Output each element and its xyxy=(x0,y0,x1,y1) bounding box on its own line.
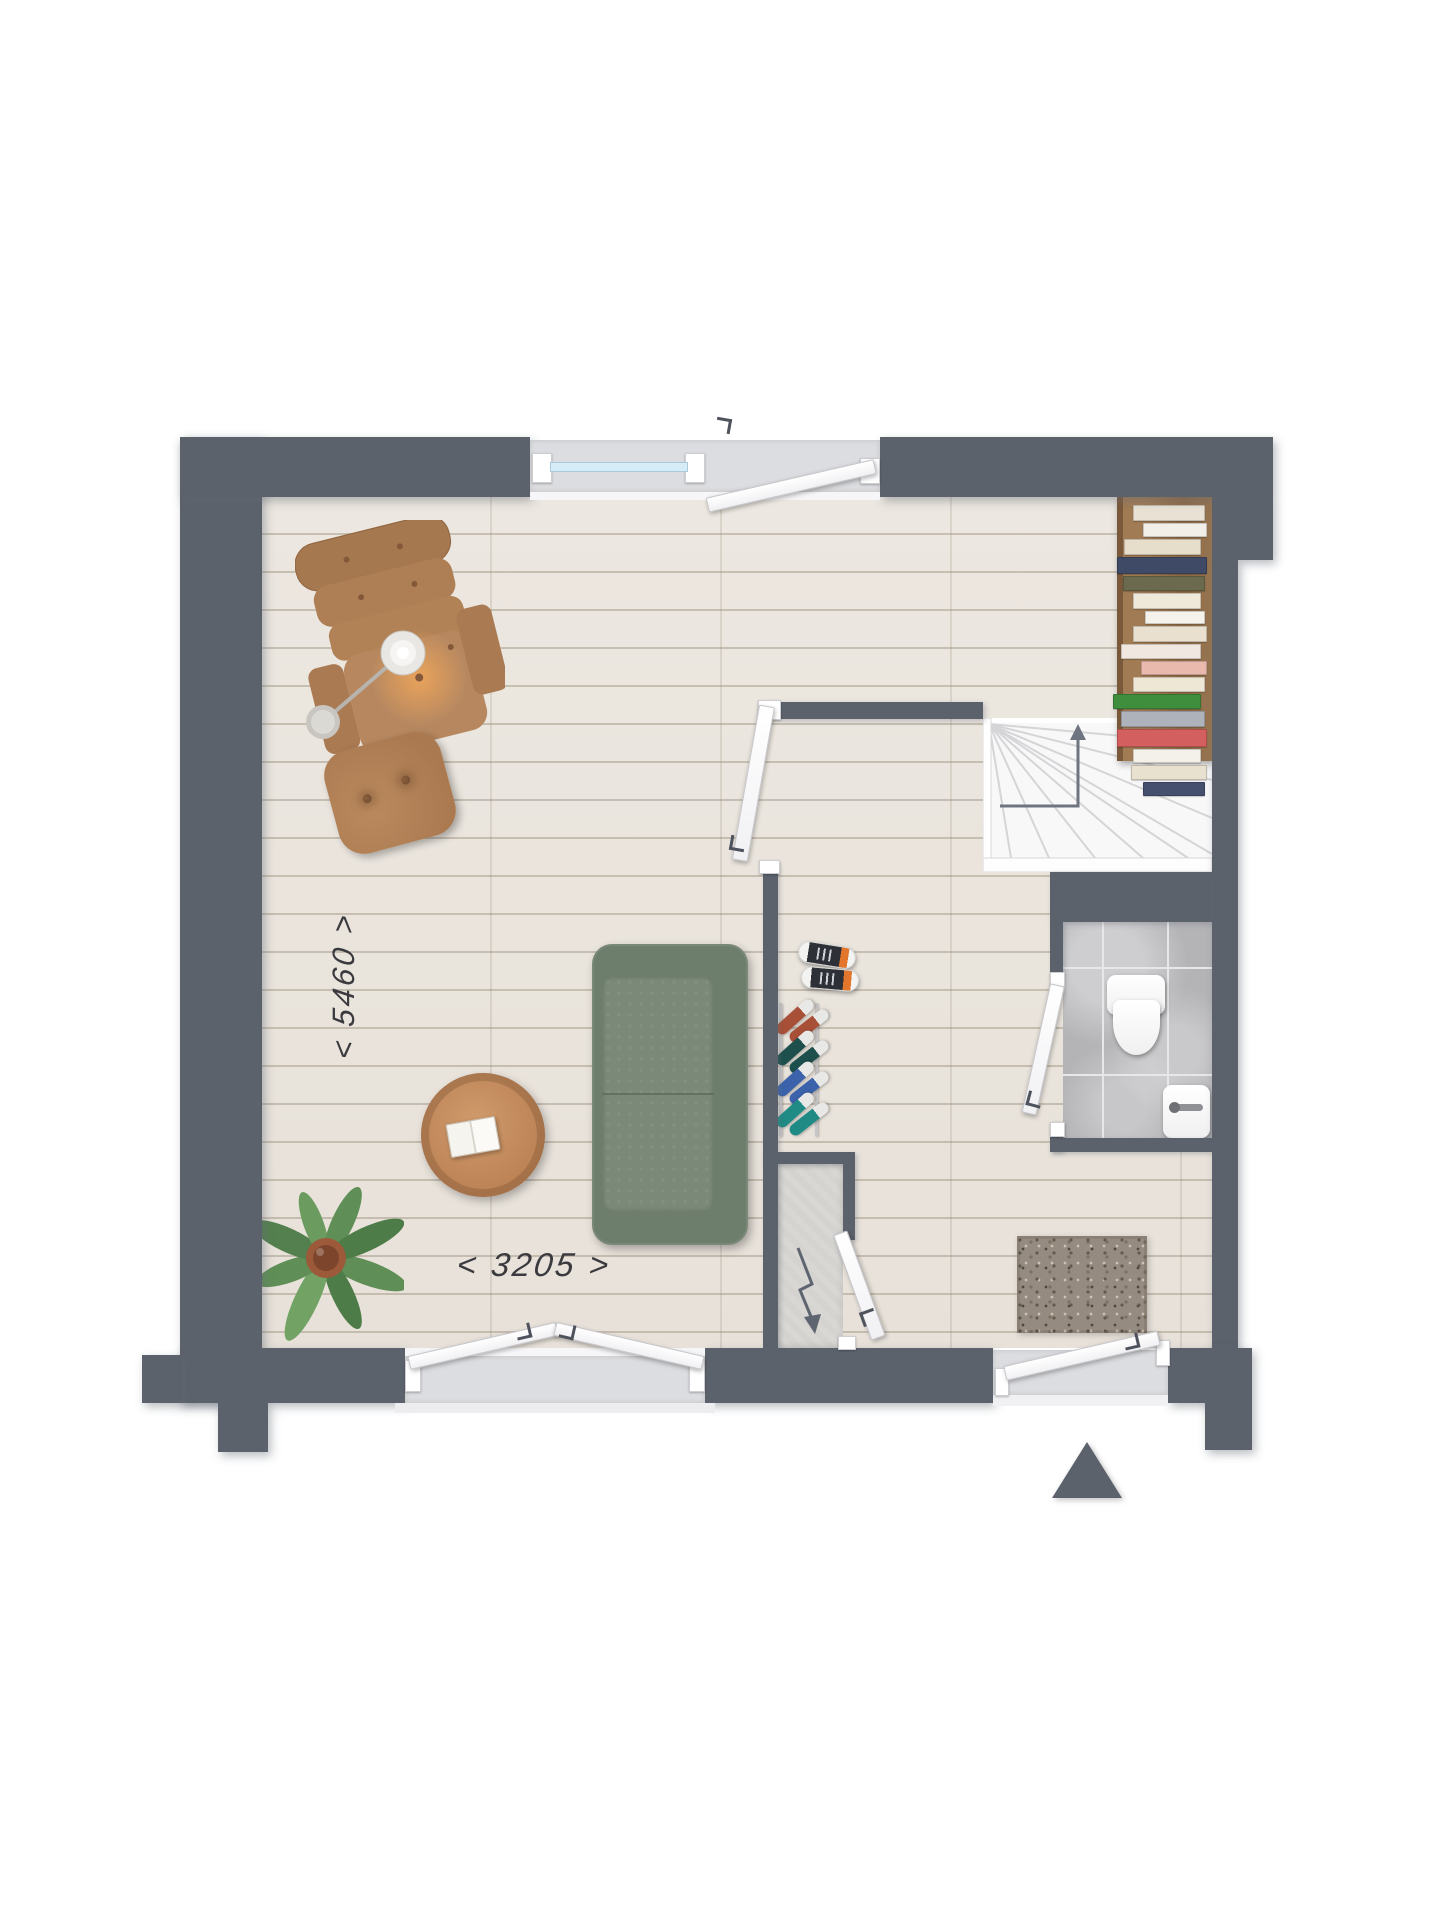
ottoman-button xyxy=(400,774,411,785)
wall-bottom-right-corner-block xyxy=(1205,1348,1252,1450)
wall-right-top-pillar xyxy=(1212,497,1273,560)
book-spine xyxy=(1133,593,1201,609)
ottoman-button xyxy=(362,793,373,804)
sink-drain xyxy=(1169,1102,1180,1113)
floor-plan-canvas: < 5460 > < 3205 > xyxy=(0,0,1440,1920)
book-spine xyxy=(1133,677,1205,692)
tile-grout xyxy=(1102,922,1104,1138)
book-spine xyxy=(1145,611,1205,624)
living-room-door-handle xyxy=(729,835,746,852)
bookshelf-books xyxy=(1117,505,1207,796)
wall-left xyxy=(180,437,262,1403)
window-frame-left xyxy=(532,453,552,483)
wall-bathroom-top xyxy=(1050,872,1212,922)
wall-right xyxy=(1212,560,1238,1348)
lamp-shade xyxy=(381,631,425,675)
garden-doors-bay xyxy=(405,1356,705,1403)
sofa-cushion-seam xyxy=(602,1093,714,1095)
bathroom-door-jamb-bottom xyxy=(1050,1122,1065,1137)
bookshelf xyxy=(1117,497,1212,761)
book-spine xyxy=(1123,576,1205,591)
book-spine xyxy=(1131,765,1207,780)
wall-bottom-left-segment xyxy=(180,1348,405,1403)
shoe-rack xyxy=(770,1003,850,1136)
wall-hall-vertical xyxy=(763,862,778,1348)
tile-grout xyxy=(1063,967,1212,969)
wall-hall-horizontal xyxy=(765,702,983,719)
book-spine xyxy=(1143,523,1207,537)
book-spine xyxy=(1124,539,1201,555)
wall-bathroom-bottom xyxy=(1050,1138,1212,1152)
sofa xyxy=(592,944,748,1245)
bathroom-sink xyxy=(1163,1085,1210,1138)
wall-bottom-middle-segment xyxy=(705,1348,993,1403)
book-spine xyxy=(1133,505,1205,521)
dimension-label-horizontal: < 3205 > xyxy=(425,1246,643,1286)
book-spine xyxy=(1133,626,1207,642)
entrance-outer-sill xyxy=(993,1395,1168,1406)
book-spine xyxy=(1121,711,1205,727)
living-door-bottom-jamb xyxy=(759,860,780,874)
book-spine xyxy=(1113,694,1201,709)
wall-closet-right xyxy=(843,1164,855,1240)
wall-bottom-left-protrusion xyxy=(142,1355,182,1403)
closet-door-jamb xyxy=(838,1336,856,1350)
wall-top-left-segment xyxy=(180,437,530,497)
book-spine xyxy=(1117,729,1207,747)
book-spine xyxy=(1143,782,1205,796)
book-spine xyxy=(1141,661,1207,675)
book-spine xyxy=(1133,749,1201,763)
window-frame-right xyxy=(685,453,705,483)
electric-meter-bolt-icon xyxy=(791,1242,836,1342)
book-spine xyxy=(1117,557,1207,574)
dimension-label-vertical: < 5460 > xyxy=(326,868,366,1104)
wall-bottom-left-stub xyxy=(218,1403,268,1452)
window-glass xyxy=(550,462,688,472)
garden-doors-outer-sill xyxy=(395,1403,715,1413)
wall-top-right-segment xyxy=(880,437,1273,497)
wall-closet-top xyxy=(763,1152,855,1164)
entrance-arrow-icon xyxy=(1052,1442,1122,1498)
potted-plant xyxy=(254,1186,404,1348)
book-spine xyxy=(1121,644,1201,659)
doormat xyxy=(1017,1236,1147,1333)
tile-grout xyxy=(1063,1074,1212,1076)
back-door-handle xyxy=(715,417,732,434)
